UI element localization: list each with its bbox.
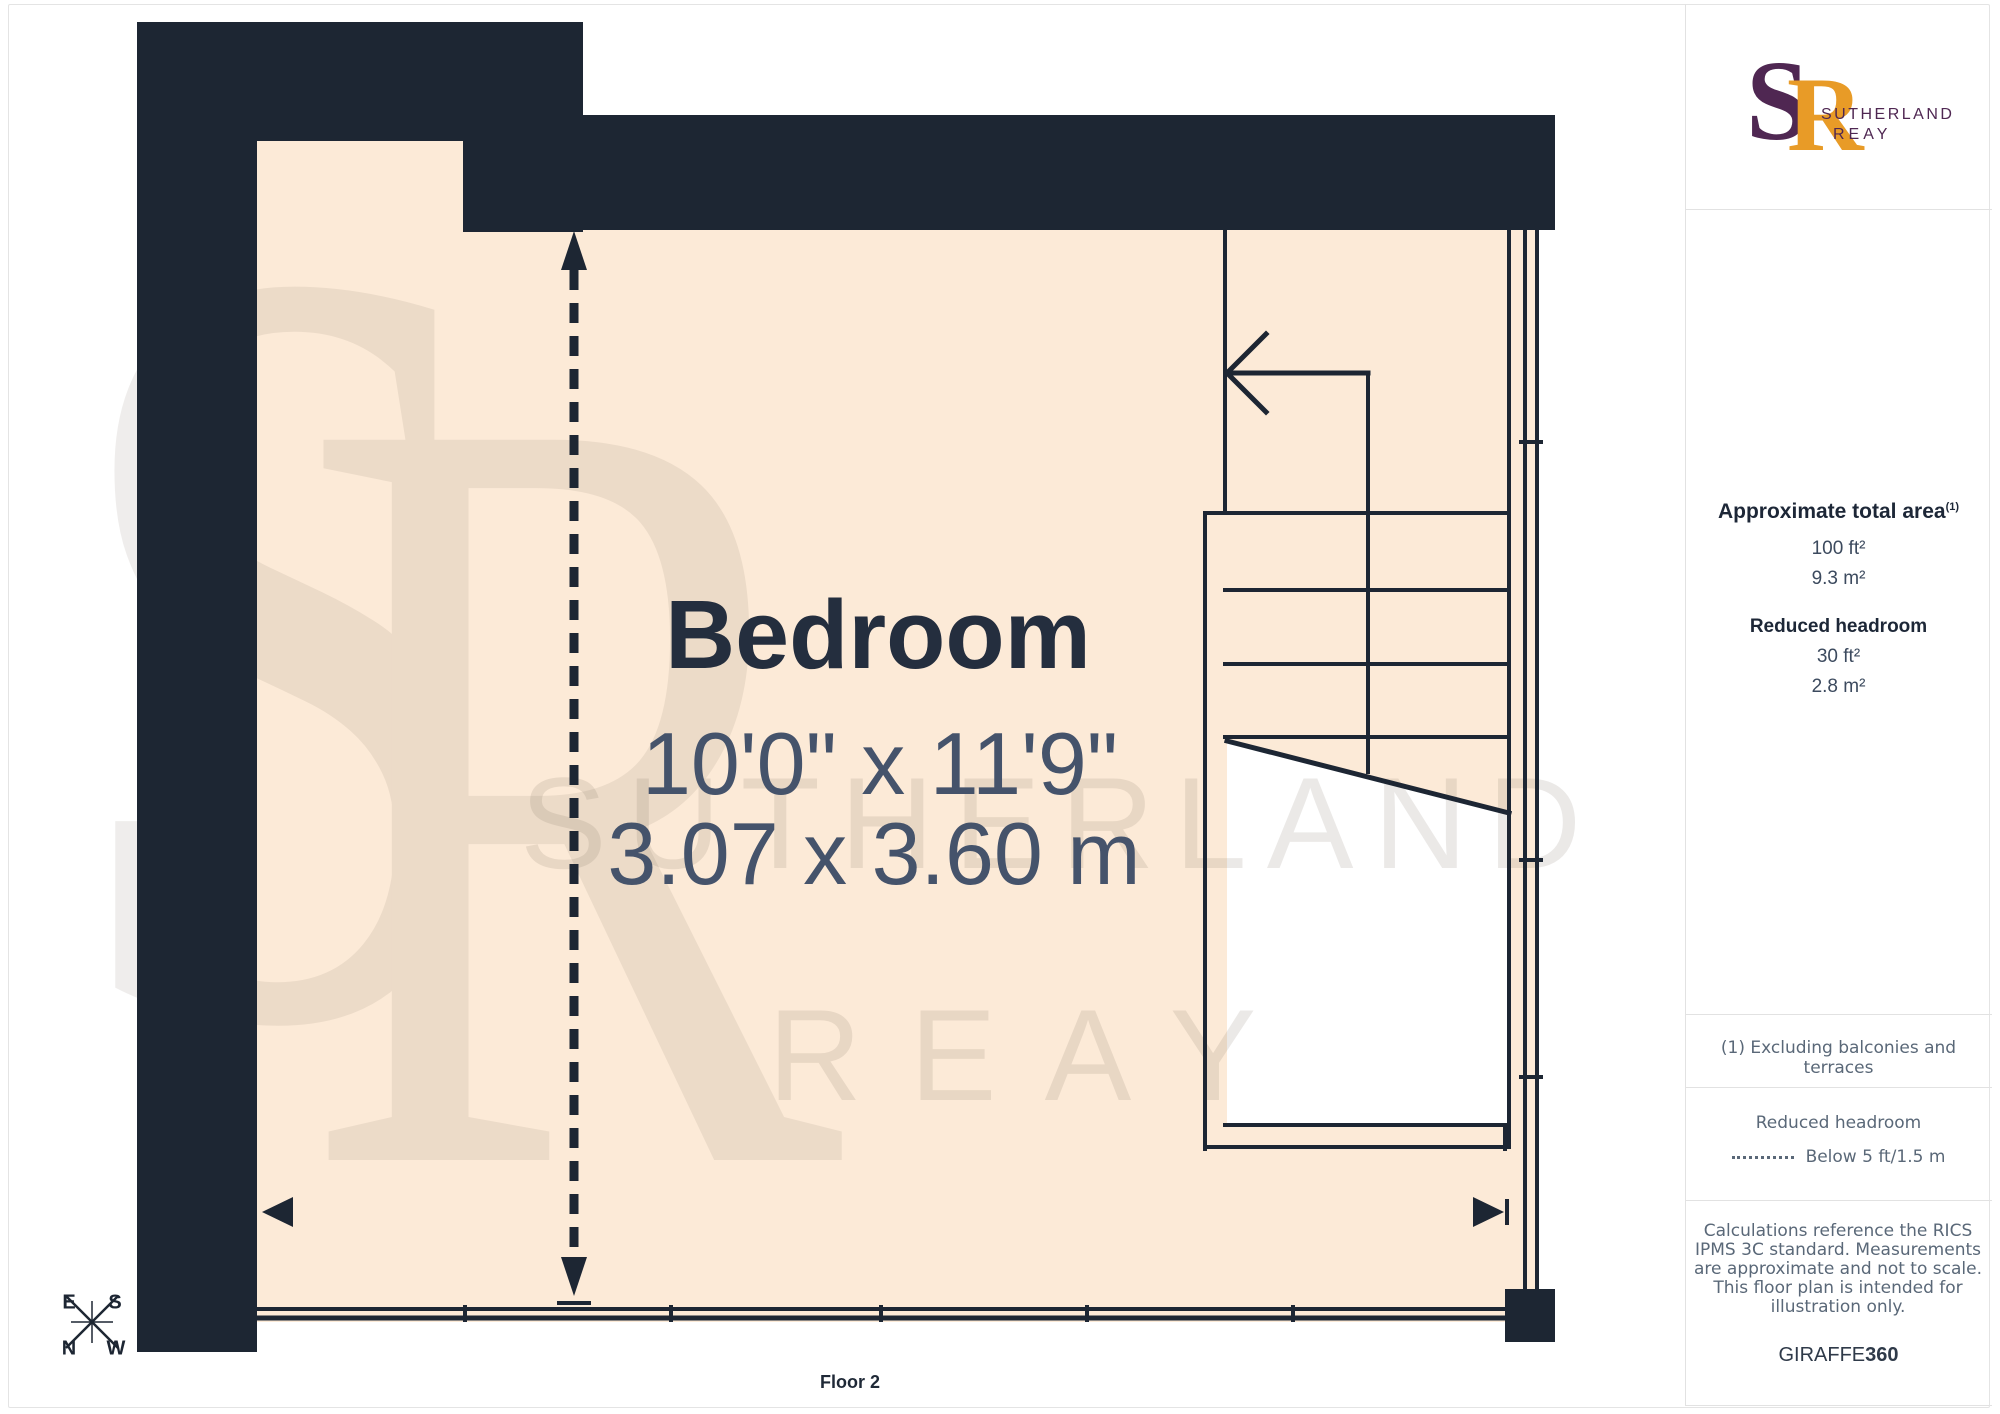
compass-letter-n: N — [62, 1338, 76, 1361]
wall-corner — [463, 141, 583, 232]
wall-left — [137, 141, 257, 1352]
wall-bottom-right-block — [1505, 1289, 1555, 1342]
logo-name-line2: REAY — [1833, 126, 1891, 144]
room-dimensions-imperial: 10'0" x 11'9" — [642, 720, 1118, 808]
area-summary: Approximate total area(1) 100 ft² 9.3 m²… — [1685, 500, 1992, 698]
total-area-footnote-marker: (1) — [1946, 501, 1959, 513]
reduced-headroom-title: Reduced headroom — [1685, 616, 1992, 638]
disclaimer: Calculations reference the RICS IPMS 3C … — [1688, 1222, 1988, 1317]
wall-top — [583, 115, 1555, 230]
total-area-ft: 100 ft² — [1685, 538, 1992, 560]
floor-plan-canvas: S R SUTHERLAND REAY — [0, 0, 2000, 1414]
wall-top-left-block — [137, 22, 583, 141]
brand: GIRAFFE360 — [1685, 1344, 1992, 1367]
legend-label: Below 5 ft/1.5 m — [1806, 1147, 1946, 1167]
total-area-m: 9.3 m² — [1685, 568, 1992, 590]
sidebar-divider — [1685, 209, 1992, 210]
logo-name-line1: SUTHERLAND — [1821, 106, 1954, 124]
floor-label: Floor 2 — [820, 1372, 880, 1393]
reduced-headroom-ft: 30 ft² — [1685, 646, 1992, 668]
reduced-headroom-dash-icon — [1732, 1156, 1794, 1159]
sidebar-divider — [1685, 1087, 1992, 1088]
sidebar-divider — [1685, 1200, 1992, 1201]
legend-row: Below 5 ft/1.5 m — [1685, 1147, 1992, 1167]
room-dimensions-metric: 3.07 x 3.60 m — [607, 810, 1140, 898]
sidebar-divider — [1685, 1405, 1992, 1406]
legend-title: Reduced headroom — [1685, 1113, 1992, 1133]
compass-letter-e: E — [62, 1292, 75, 1315]
total-area-title: Approximate total area(1) — [1685, 500, 1992, 524]
compass-letter-s: S — [108, 1292, 121, 1315]
sidebar-border — [1685, 4, 1686, 1406]
brand-name: GIRAFFE — [1778, 1344, 1865, 1366]
footnote: (1) Excluding balconies and terraces — [1685, 1038, 1992, 1078]
reduced-headroom-m: 2.8 m² — [1685, 676, 1992, 698]
brand-suffix: 360 — [1865, 1344, 1898, 1366]
sidebar-divider — [1685, 1014, 1992, 1015]
room-label: Bedroom — [665, 586, 1091, 683]
compass-letter-w: W — [107, 1338, 126, 1361]
floor-plan-page: S R SUTHERLAND REAY — [0, 0, 2000, 1414]
